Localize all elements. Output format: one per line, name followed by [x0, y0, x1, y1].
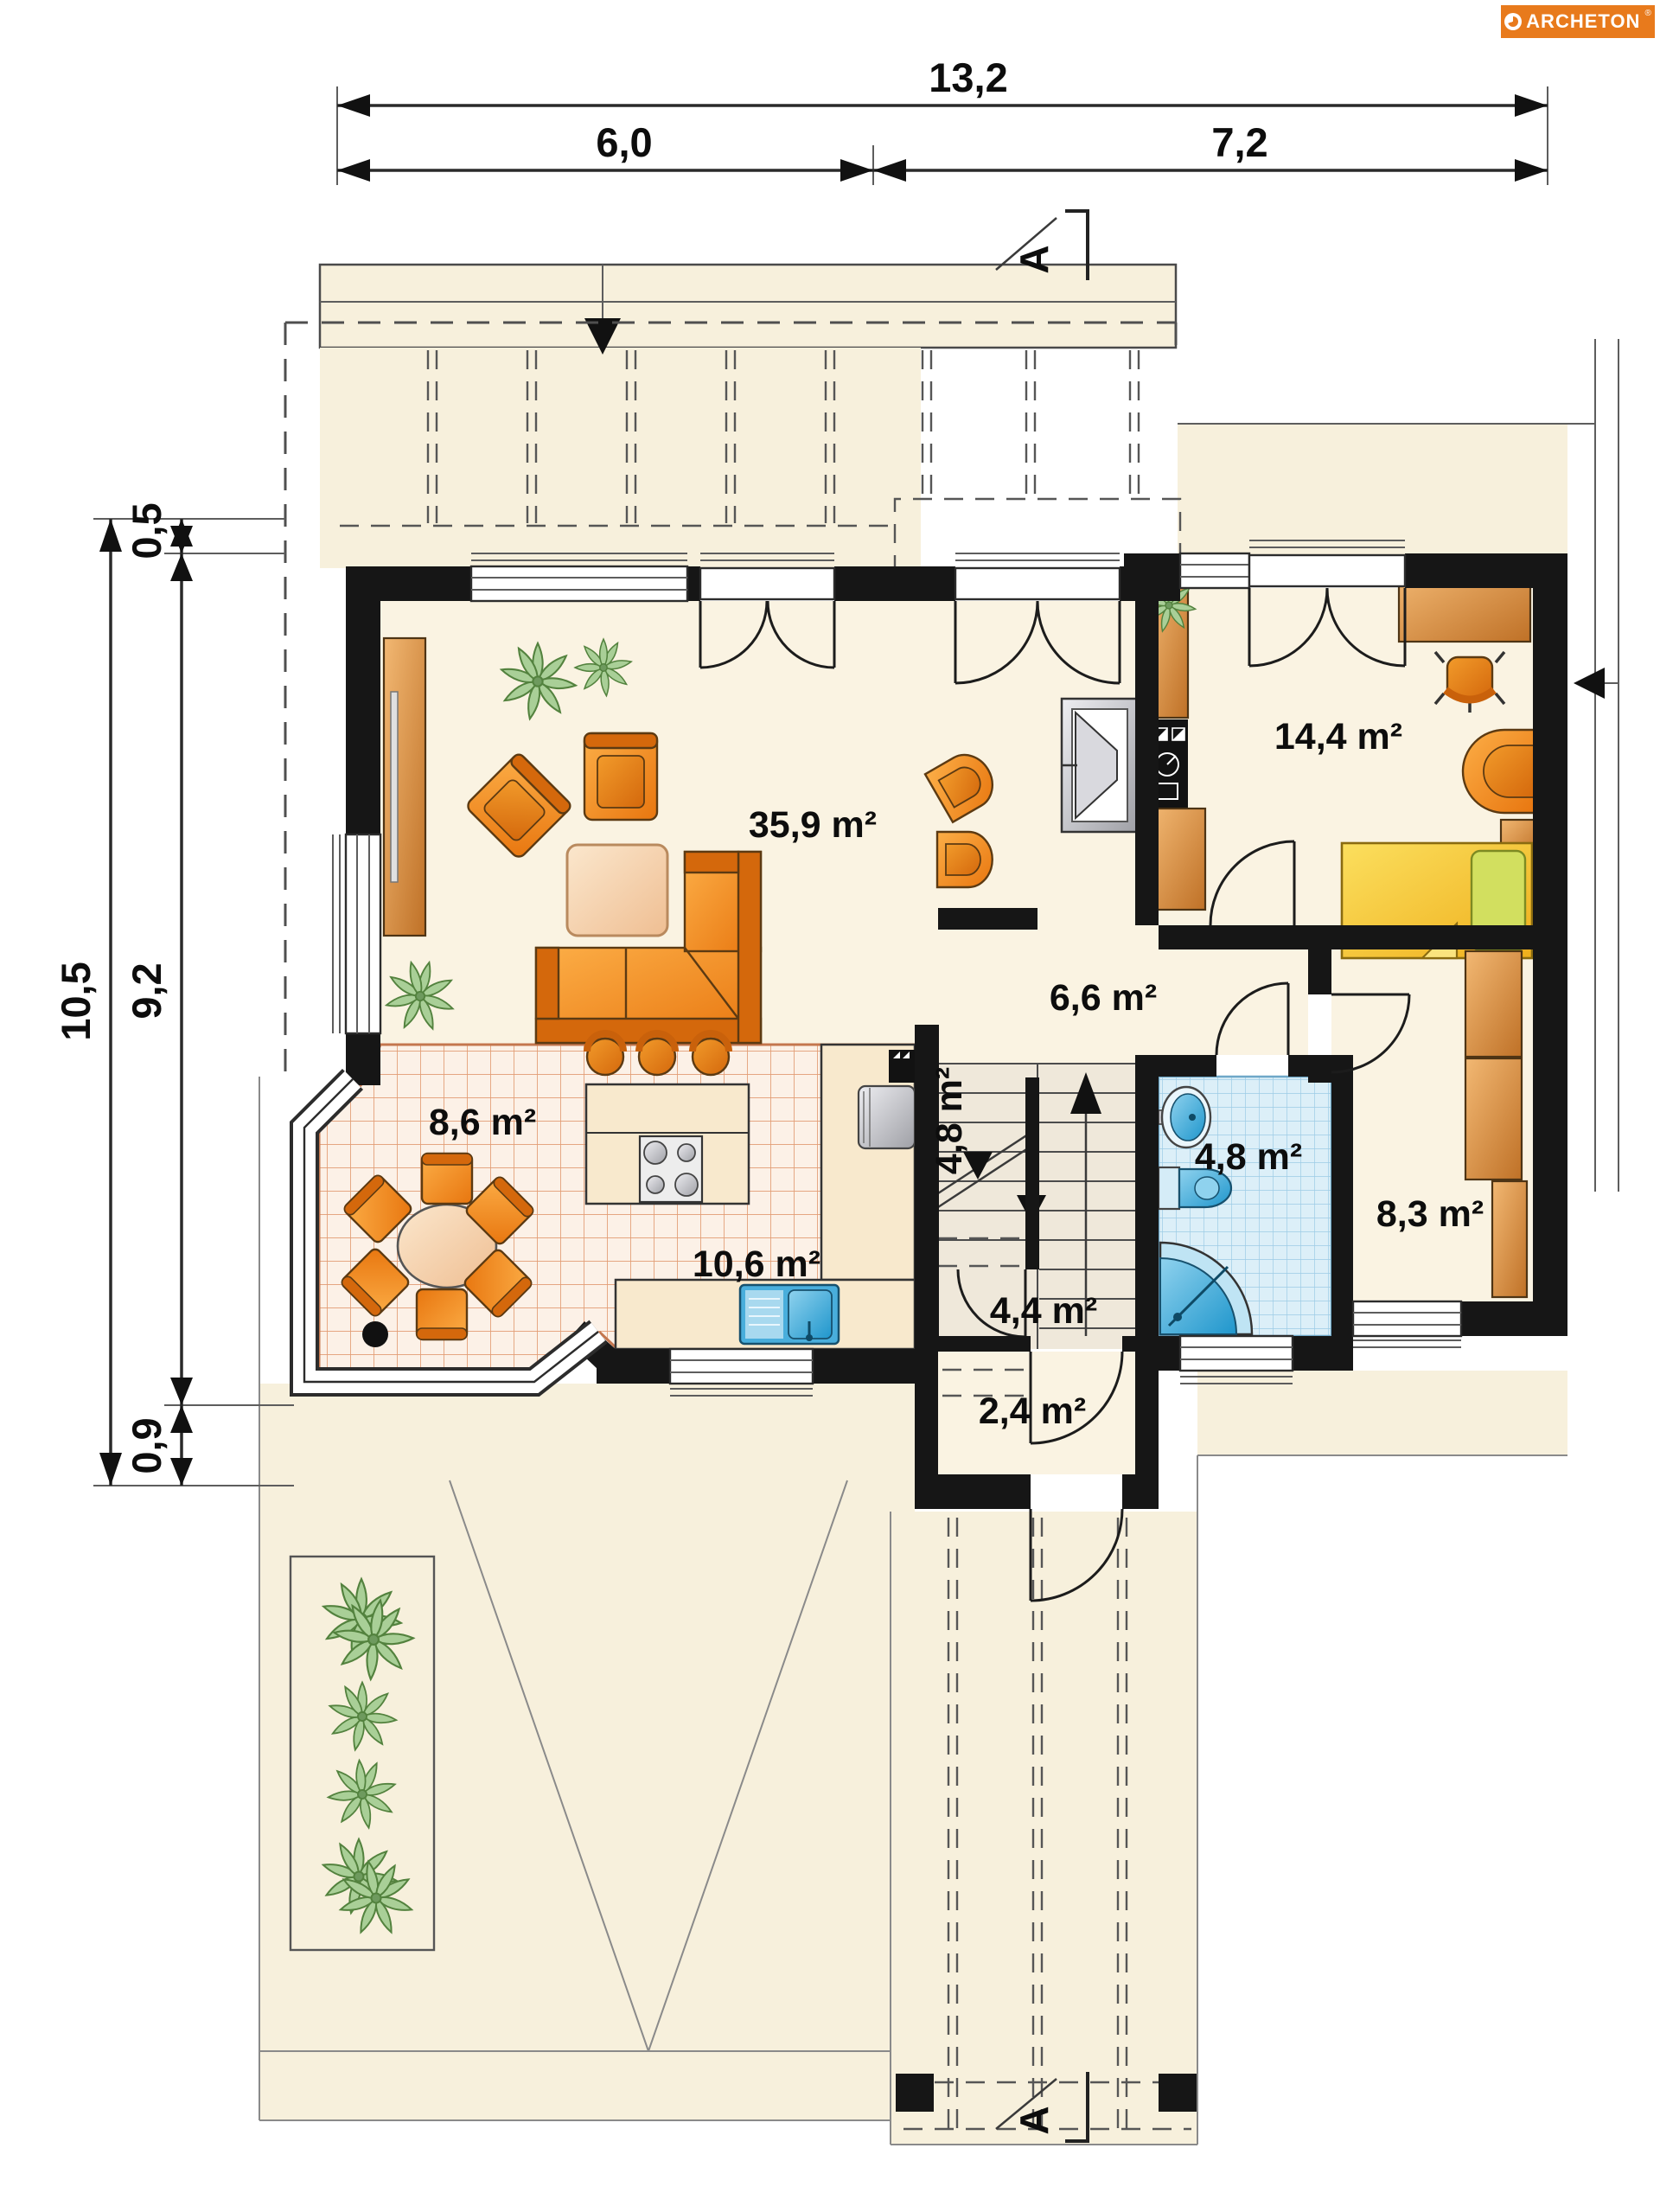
dim-offset-bottom: 0,9 [124, 1417, 169, 1474]
window [1353, 1301, 1461, 1336]
porch-column [896, 2074, 934, 2112]
porch [891, 1512, 1197, 2145]
porch-column [1159, 2074, 1197, 2112]
room-label-bedroom: 14,4 m² [1274, 716, 1402, 758]
floor-plan-drawing: 35,9 m² 14,4 m² 6,6 m² 8,6 m² 10,6 m² 4,… [0, 0, 1660, 2212]
side-pavement [259, 1384, 915, 1512]
window [670, 1349, 813, 1384]
room-label-living: 35,9 m² [749, 804, 877, 846]
wardrobe-handle [391, 692, 398, 882]
sink-counter [616, 1280, 915, 1349]
window [471, 566, 687, 601]
dining-chair [417, 1289, 467, 1339]
eave-arrow-icon [1574, 668, 1605, 699]
dim-main-depth: 9,2 [124, 962, 169, 1019]
coffee-table [567, 845, 667, 936]
room-label-kitchen: 10,6 m² [693, 1243, 820, 1285]
room-label-hall: 6,6 m² [1050, 977, 1157, 1019]
dim-left-span: 6,0 [596, 119, 652, 165]
dining-chair [422, 1154, 472, 1204]
dim-right-span: 7,2 [1211, 119, 1267, 165]
room-label-dining: 8,6 m² [429, 1102, 536, 1143]
window [1180, 1336, 1293, 1371]
section-letter-top: A [1012, 245, 1057, 273]
terrace [320, 348, 921, 568]
planter-bed [290, 1557, 434, 1950]
dim-overall-depth: 10,5 [53, 962, 99, 1040]
sunburst-logo-icon [1504, 13, 1522, 30]
dim-offset-top: 0,5 [124, 502, 169, 559]
armchair [584, 733, 657, 820]
wardrobe [1492, 1181, 1527, 1297]
floor-plan-page: 35,9 m² 14,4 m² 6,6 m² 8,6 m² 10,6 m² 4,… [0, 0, 1660, 2212]
tub-chair [937, 832, 993, 887]
oven [889, 1050, 915, 1083]
room-label-stairs: 4,8 m² [929, 1067, 970, 1174]
wardrobe [1465, 1058, 1522, 1180]
window [346, 834, 380, 1033]
bedroom-armchair [1463, 730, 1535, 813]
roof-eave-right [1574, 339, 1618, 1192]
deck-strip [320, 265, 1176, 348]
room-label-entry: 4,4 m² [990, 1290, 1097, 1332]
fridge [859, 1086, 915, 1148]
brand-logo: ARCHETON ® [1501, 5, 1655, 38]
dim-overall-width: 13,2 [929, 54, 1007, 100]
upper-right-deck [1178, 424, 1567, 555]
terrace-door-opening [700, 568, 834, 599]
room-label-bathroom: 4,8 m² [1195, 1136, 1302, 1178]
kitchen-island [586, 1084, 749, 1204]
bar-stools [587, 1033, 729, 1075]
fireplace [1062, 699, 1138, 832]
brand-name: ARCHETON [1526, 12, 1640, 31]
room-label-storage: 8,3 m² [1376, 1193, 1484, 1235]
column-dot [362, 1321, 388, 1347]
bedroom-door-opening [1249, 555, 1405, 586]
window [1180, 553, 1249, 588]
registered-mark: ® [1644, 9, 1650, 18]
living-wardrobe [384, 638, 425, 936]
section-letter-bottom: A [1012, 2106, 1057, 2134]
wardrobe [1465, 951, 1522, 1057]
entrance-door-opening [955, 568, 1120, 599]
room-label-vestibule: 2,4 m² [979, 1390, 1086, 1432]
